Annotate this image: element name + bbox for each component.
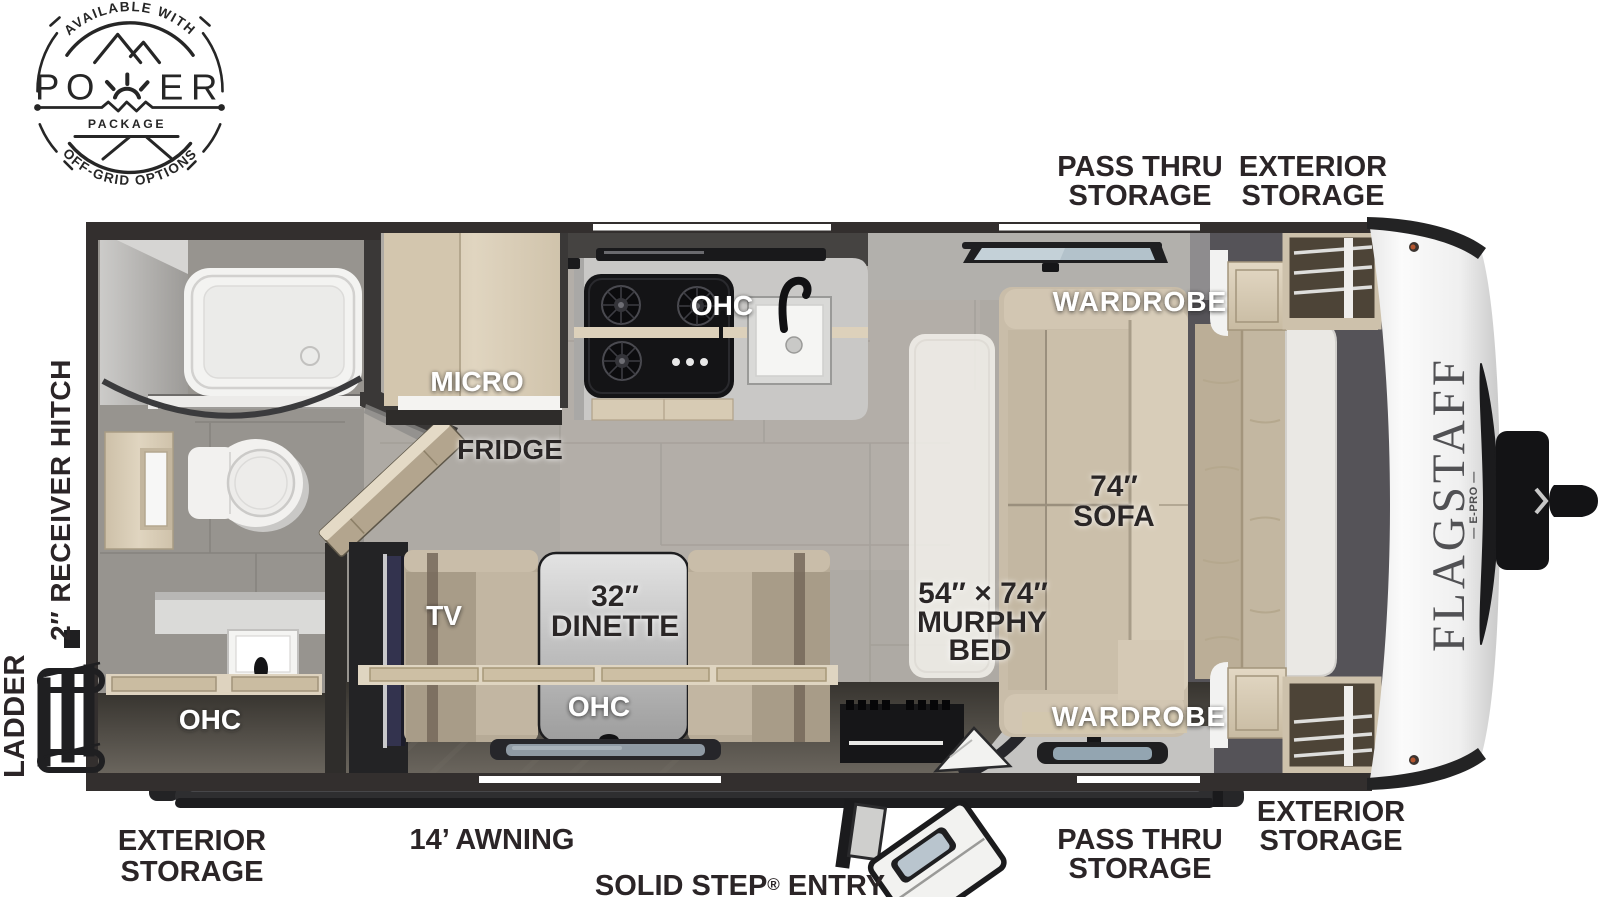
svg-text:STORAGE: STORAGE <box>121 856 264 888</box>
svg-text:WARDROBE: WARDROBE <box>1052 701 1226 732</box>
svg-text:2″ RECEIVER HITCH: 2″ RECEIVER HITCH <box>45 359 76 641</box>
svg-text:O: O <box>66 67 94 108</box>
svg-text:EXTERIOR: EXTERIOR <box>118 825 266 857</box>
svg-text:LADDER: LADDER <box>0 654 31 778</box>
svg-text:14’ AWNING: 14’ AWNING <box>410 824 575 856</box>
svg-text:DINETTE: DINETTE <box>551 610 679 643</box>
svg-text:PASS THRU: PASS THRU <box>1057 151 1222 183</box>
svg-text:STORAGE: STORAGE <box>1242 180 1385 212</box>
svg-text:R: R <box>191 67 217 108</box>
svg-text:— E-PRO —: — E-PRO — <box>1468 471 1480 538</box>
svg-text:STORAGE: STORAGE <box>1069 853 1212 885</box>
svg-text:74″: 74″ <box>1090 470 1138 503</box>
svg-text:TV: TV <box>426 600 462 631</box>
svg-text:PACKAGE: PACKAGE <box>88 117 166 131</box>
svg-text:PASS THRU: PASS THRU <box>1057 824 1222 856</box>
svg-text:STORAGE: STORAGE <box>1260 825 1403 857</box>
svg-text:EXTERIOR: EXTERIOR <box>1257 796 1405 828</box>
svg-text:BED: BED <box>948 634 1011 667</box>
svg-text:MICRO: MICRO <box>430 366 523 397</box>
svg-text:STORAGE: STORAGE <box>1069 180 1212 212</box>
svg-text:SOFA: SOFA <box>1073 500 1155 533</box>
svg-text:FRIDGE: FRIDGE <box>457 434 563 465</box>
svg-text:WARDROBE: WARDROBE <box>1053 286 1227 317</box>
svg-text:SOLID STEP® ENTRY: SOLID STEP® ENTRY <box>595 870 885 897</box>
svg-text:OHC: OHC <box>568 691 630 722</box>
svg-text:E: E <box>159 67 183 108</box>
svg-text:EXTERIOR: EXTERIOR <box>1239 151 1387 183</box>
svg-text:32″: 32″ <box>591 580 639 613</box>
svg-text:OHC: OHC <box>179 704 241 735</box>
svg-text:OHC: OHC <box>691 290 753 321</box>
svg-text:P: P <box>35 67 59 108</box>
